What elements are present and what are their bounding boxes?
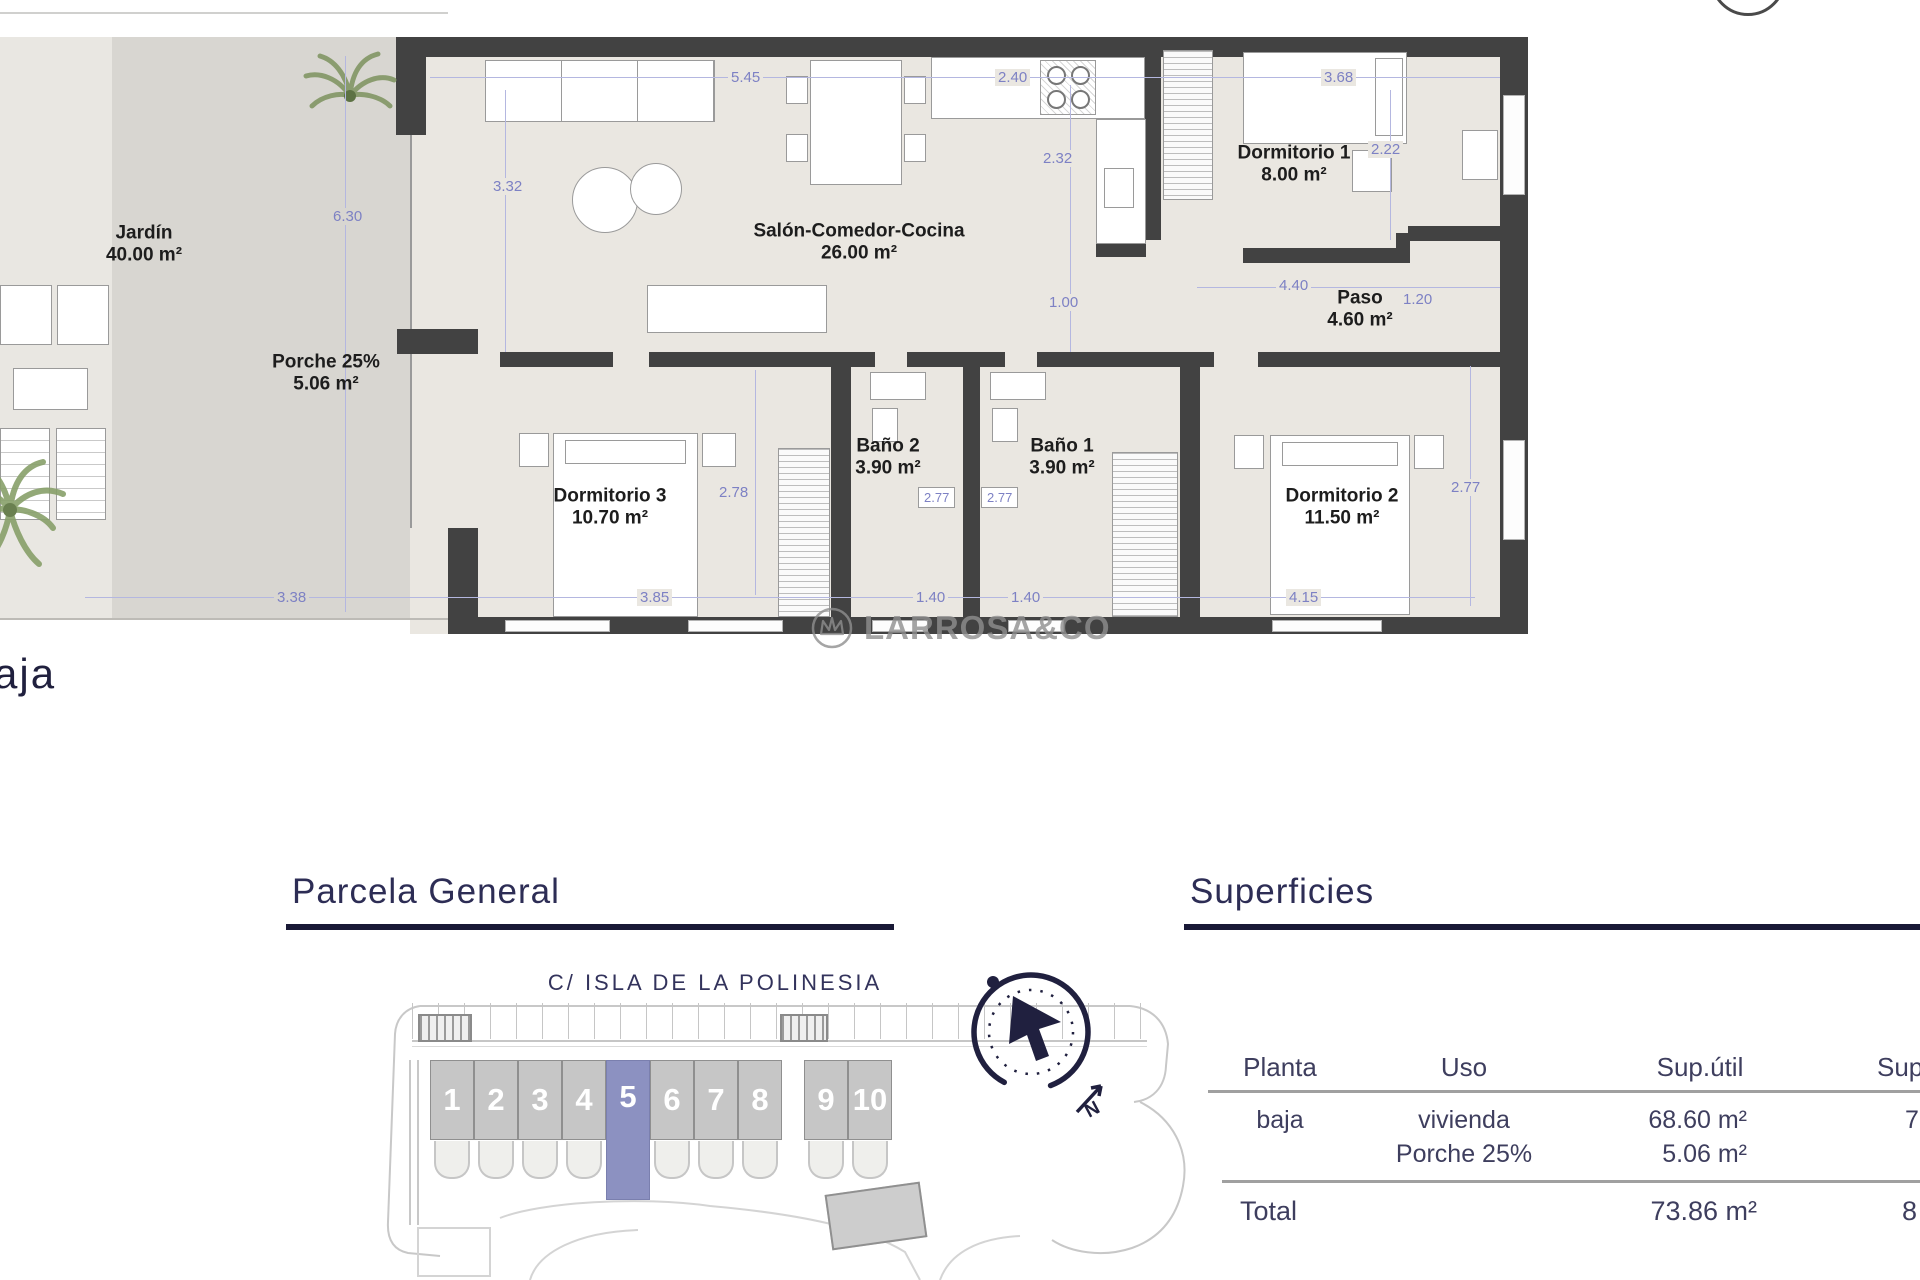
terrace-bottom-line — [0, 618, 450, 620]
dimension-label: 6.30 — [330, 208, 365, 225]
nightstand — [702, 433, 736, 467]
room-name: Baño 2 — [855, 436, 920, 458]
nightstand — [1234, 435, 1264, 469]
chair — [786, 76, 808, 104]
plot-cell-9: 9 — [804, 1060, 848, 1140]
dimension-label: 4.40 — [1276, 277, 1311, 294]
window — [688, 620, 783, 632]
door-opening — [613, 352, 649, 367]
parcela-title: Parcela General — [292, 872, 560, 912]
plot-cell-2: 2 — [474, 1060, 518, 1140]
pillow — [1375, 58, 1403, 136]
wall-divider — [500, 352, 1507, 367]
floor-label: aja — [0, 650, 56, 698]
superficies-rule — [1184, 924, 1920, 930]
room-name: Jardín — [106, 223, 182, 245]
shower — [1112, 452, 1178, 617]
garden-chair — [57, 285, 109, 345]
plot-number: 10 — [853, 1082, 887, 1118]
table-cell-uso-2: Porche 25% — [1394, 1140, 1534, 1169]
plot-cell-1: 1 — [430, 1060, 474, 1140]
rug — [630, 163, 682, 215]
table-total-value: 73.86 m² — [1597, 1196, 1757, 1227]
room-name: Dormitorio 1 — [1238, 143, 1351, 165]
dimension-label: 2.77 — [918, 487, 955, 508]
room-area: 10.70 m² — [554, 508, 667, 530]
door-opening — [1214, 352, 1258, 367]
wardrobe — [778, 448, 830, 617]
plot-number: 8 — [751, 1082, 768, 1118]
balcony-outline — [522, 1141, 558, 1179]
table-header-sup-cut: Sup — [1877, 1052, 1920, 1083]
plot-cell-7: 7 — [694, 1060, 738, 1140]
dimension-line — [505, 90, 506, 352]
wall-porch-pillar — [397, 329, 478, 354]
balcony-outline — [654, 1141, 690, 1179]
compass-icon: N — [965, 962, 1135, 1132]
window — [1503, 95, 1525, 195]
table-cell-supcut-row: 7 — [1905, 1106, 1919, 1135]
room-name: Porche 25% — [272, 352, 380, 374]
wall-dorm1-bottom — [1243, 248, 1403, 263]
room-area: 11.50 m² — [1286, 508, 1399, 530]
table-cell-suputil-2: 5.06 m² — [1597, 1140, 1747, 1169]
garden-chair — [0, 285, 52, 345]
burner-icon — [1071, 90, 1090, 109]
bath-sink — [870, 372, 926, 400]
floor-plan: 5.45 2.40 3.68 2.22 3.32 6.30 2.32 1.00 … — [0, 0, 1920, 700]
table-total-cut: 8 — [1902, 1196, 1917, 1227]
chair — [904, 76, 926, 104]
room-label-bano1: Baño 1 3.90 m² — [1029, 436, 1094, 481]
room-label-dormitorio1: Dormitorio 1 8.00 m² — [1238, 143, 1351, 188]
dimension-label: 3.38 — [274, 589, 309, 606]
plot-cell-3: 3 — [518, 1060, 562, 1140]
dimension-label: 4.15 — [1286, 589, 1321, 606]
room-label-dormitorio3: Dormitorio 3 10.70 m² — [554, 486, 667, 531]
kitchen-sink — [1104, 168, 1134, 208]
room-name: Baño 1 — [1029, 436, 1094, 458]
plot-number: 6 — [663, 1082, 680, 1118]
table-cell-uso-1: vivienda — [1394, 1106, 1534, 1135]
dimension-label: 2.77 — [981, 487, 1018, 508]
table-header-uso: Uso — [1404, 1052, 1524, 1083]
nightstand — [1462, 130, 1498, 180]
wall-banos-middle — [963, 367, 980, 617]
rug — [572, 167, 638, 233]
balcony-outline — [852, 1141, 888, 1179]
dimension-line — [1070, 85, 1071, 352]
table-cell-suputil-1: 68.60 m² — [1597, 1106, 1747, 1135]
stairs-icon — [780, 1014, 828, 1042]
room-area: 3.90 m² — [1029, 458, 1094, 480]
room-area: 26.00 m² — [753, 243, 964, 265]
palm-tree-icon — [300, 48, 400, 138]
plot-number: 2 — [487, 1082, 504, 1118]
plot-number: 1 — [443, 1082, 460, 1118]
dimension-label: 3.85 — [637, 589, 672, 606]
table-header-sup-util: Sup.útil — [1628, 1052, 1772, 1083]
burner-icon — [1071, 66, 1090, 85]
room-area: 8.00 m² — [1238, 165, 1351, 187]
garden-table — [13, 368, 88, 410]
room-name: Dormitorio 3 — [554, 486, 667, 508]
burner-icon — [1047, 66, 1066, 85]
dimension-label: 1.00 — [1046, 294, 1081, 311]
sideboard — [647, 285, 827, 333]
dimension-line — [1390, 90, 1391, 240]
plot-number: 4 — [575, 1082, 592, 1118]
window — [1503, 440, 1525, 540]
door-opening — [875, 352, 907, 367]
balcony-outline — [478, 1141, 514, 1179]
room-label-jardin: Jardín 40.00 m² — [106, 223, 182, 268]
wall-bano1-dorm2 — [1180, 367, 1200, 617]
dimension-label: 2.78 — [716, 484, 751, 501]
room-label-bano2: Baño 2 3.90 m² — [855, 436, 920, 481]
stove — [1040, 60, 1096, 115]
chair — [904, 134, 926, 162]
wall-kitchen-lintel — [1096, 243, 1146, 257]
wall-pillar-bottom-left — [448, 528, 478, 634]
room-label-salon: Salón-Comedor-Cocina 26.00 m² — [753, 221, 964, 266]
site-fence-line — [0, 12, 448, 14]
room-area: 5.06 m² — [272, 374, 380, 396]
sofa — [485, 60, 715, 122]
balcony-outline — [434, 1141, 470, 1179]
plot-number: 7 — [707, 1082, 724, 1118]
balcony-outline — [698, 1141, 734, 1179]
dimension-label: 1.20 — [1400, 291, 1435, 308]
dimension-label: 2.32 — [1040, 150, 1075, 167]
table-header-rule — [1208, 1090, 1920, 1093]
bath-sink — [990, 372, 1046, 400]
balcony-outline — [742, 1141, 778, 1179]
door-opening — [1005, 352, 1037, 367]
room-label-dormitorio2: Dormitorio 2 11.50 m² — [1286, 486, 1399, 531]
balcony-outline — [808, 1141, 844, 1179]
room-name: Dormitorio 2 — [1286, 486, 1399, 508]
window — [1272, 620, 1382, 632]
compass-north: N — [1081, 1097, 1103, 1122]
burner-icon — [1047, 90, 1066, 109]
dimension-label: 2.77 — [1448, 479, 1483, 496]
page: 5.45 2.40 3.68 2.22 3.32 6.30 2.32 1.00 … — [0, 0, 1920, 1280]
toilet — [992, 408, 1018, 442]
dimension-line — [345, 56, 346, 612]
wall-kitchen — [1145, 57, 1161, 240]
window — [505, 620, 610, 632]
room-area: 4.60 m² — [1327, 310, 1392, 332]
plot-cell-5-highlighted: 5 — [606, 1060, 650, 1200]
plot-cell-6: 6 — [650, 1060, 694, 1140]
pillow — [1282, 442, 1398, 466]
room-name: Salón-Comedor-Cocina — [753, 221, 964, 243]
plot-cell-8: 8 — [738, 1060, 782, 1140]
porch-glass — [410, 354, 412, 528]
pillow — [565, 440, 686, 464]
plot-number: 9 — [817, 1082, 834, 1118]
dining-table — [810, 60, 902, 185]
room-area: 3.90 m² — [855, 458, 920, 480]
chair — [786, 134, 808, 162]
wardrobe — [1163, 50, 1213, 200]
nightstand — [519, 433, 549, 467]
table-cell-planta: baja — [1220, 1106, 1340, 1135]
room-area: 40.00 m² — [106, 245, 182, 267]
table-total-label: Total — [1240, 1196, 1297, 1227]
room-label-porche: Porche 25% 5.06 m² — [272, 352, 380, 397]
porch-glass — [410, 135, 412, 329]
parcela-rule — [286, 924, 894, 930]
table-header-planta: Planta — [1220, 1052, 1340, 1083]
plot-number: 3 — [531, 1082, 548, 1118]
palm-tree-icon — [0, 440, 70, 585]
dimension-label: 3.68 — [1321, 69, 1356, 86]
wall-dorm3-bano2 — [831, 367, 851, 617]
room-name: Paso — [1327, 288, 1392, 310]
table-divider-rule — [1222, 1180, 1920, 1183]
plot-cell-10: 10 — [848, 1060, 892, 1140]
dimension-label: 2.40 — [995, 69, 1030, 86]
crown-logo-icon — [810, 606, 854, 650]
nightstand — [1414, 435, 1444, 469]
watermark-text: LARROSA&CO — [864, 609, 1111, 647]
dimension-line — [755, 370, 756, 595]
room-label-paso: Paso 4.60 m² — [1327, 288, 1392, 333]
wall-dorm1-bottom-b — [1408, 226, 1500, 241]
plot-cell-4: 4 — [562, 1060, 606, 1140]
balcony-outline — [566, 1141, 602, 1179]
street-label: C/ ISLA DE LA POLINESIA — [500, 970, 930, 996]
wall-corner-left — [396, 37, 426, 135]
superficies-title: Superficies — [1190, 872, 1374, 912]
plot-number: 5 — [619, 1079, 636, 1115]
watermark: LARROSA&CO — [810, 602, 1150, 654]
kitchen-counter — [931, 57, 1145, 119]
dimension-label: 3.32 — [490, 178, 525, 195]
dimension-label: 5.45 — [728, 69, 763, 86]
dimension-label: 2.22 — [1368, 141, 1403, 158]
stairs-icon — [418, 1014, 472, 1042]
